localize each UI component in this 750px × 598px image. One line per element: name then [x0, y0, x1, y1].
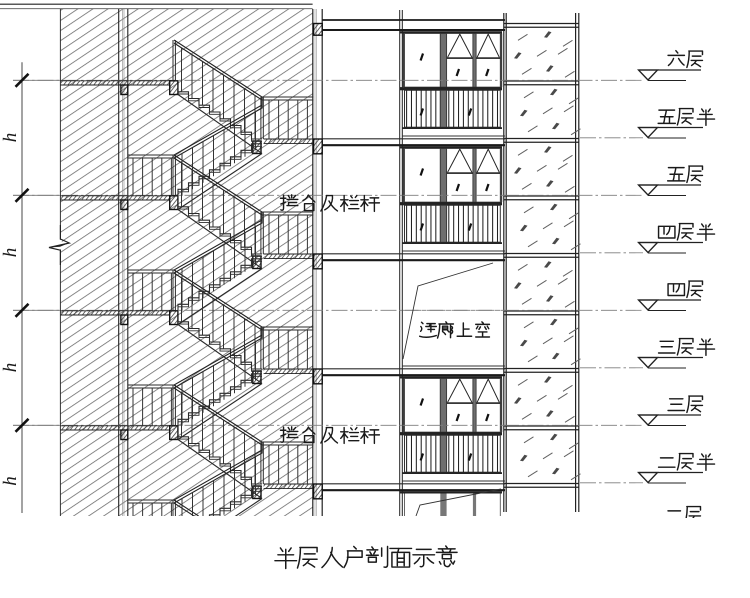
svg-text:h: h — [0, 363, 21, 373]
svg-text:h: h — [0, 248, 21, 258]
svg-text:h: h — [0, 476, 21, 486]
svg-text:h: h — [0, 133, 21, 143]
